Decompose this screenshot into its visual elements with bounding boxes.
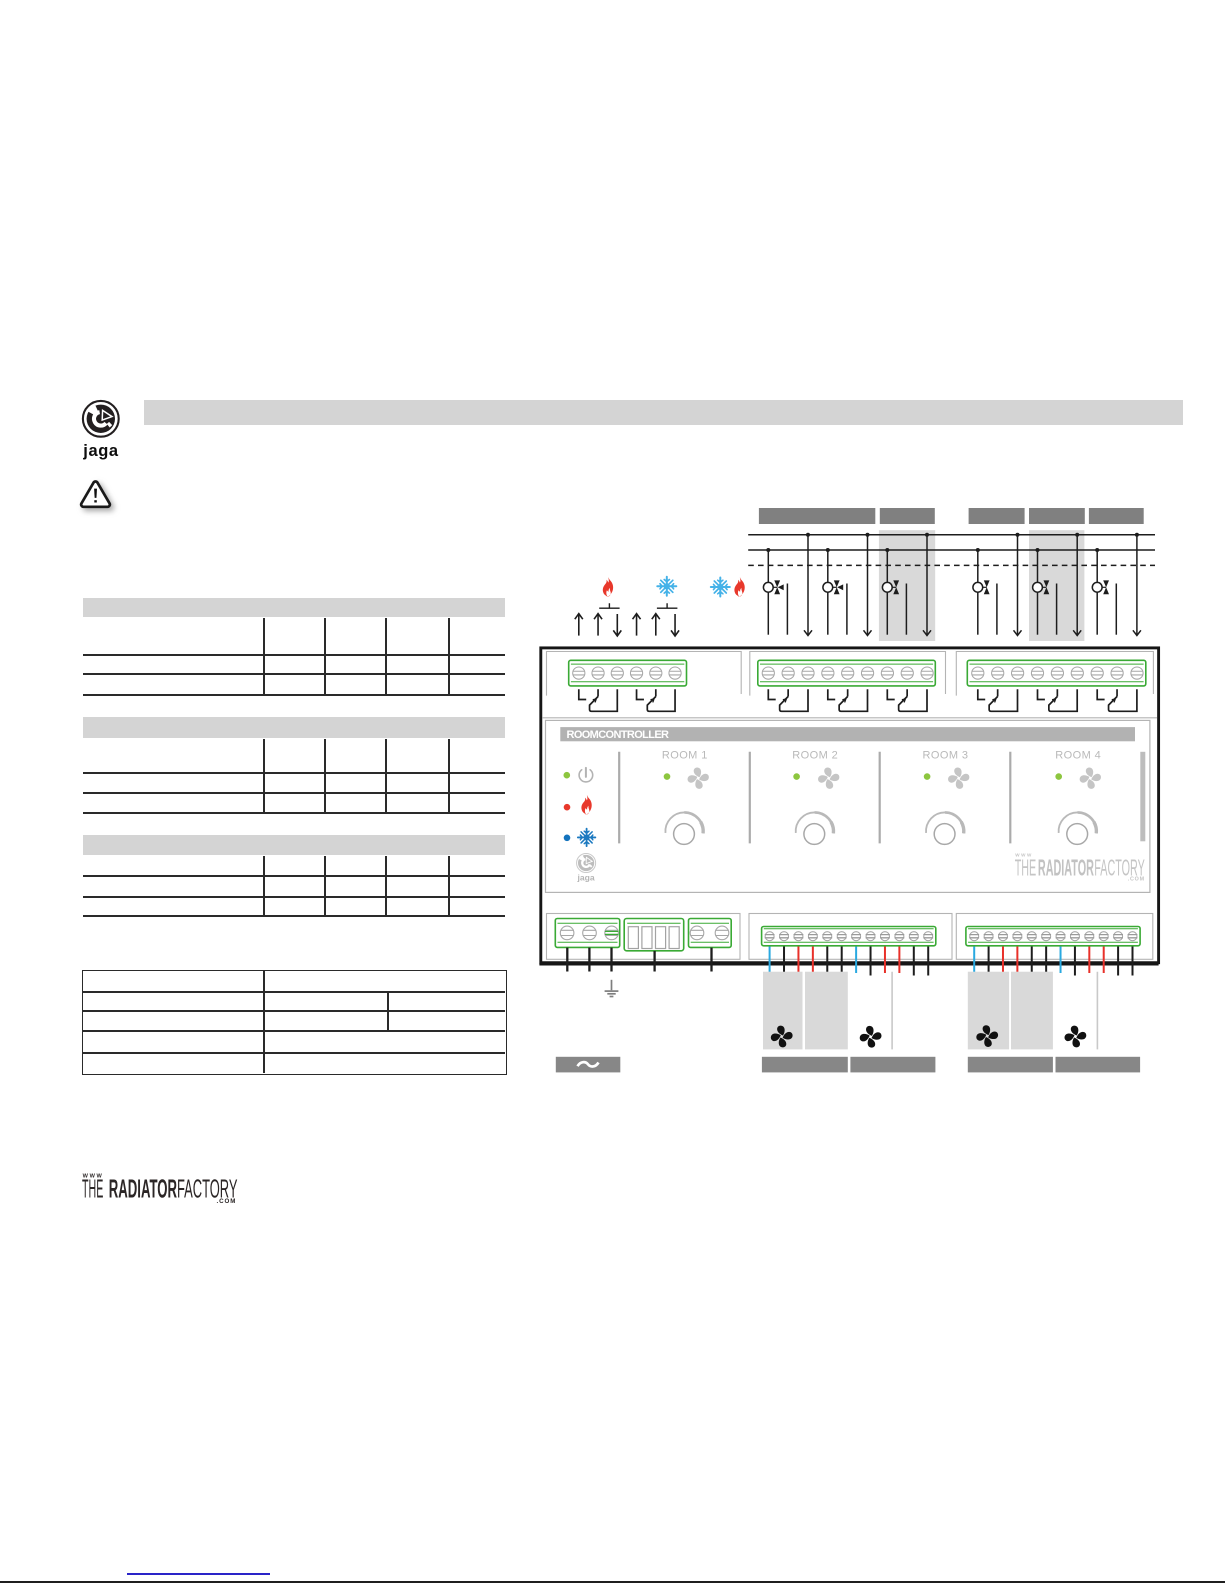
svg-text:RADIATOR: RADIATOR: [109, 1174, 177, 1204]
svg-text:ROOM 3: ROOM 3: [923, 749, 969, 761]
svg-text:.COM: .COM: [1128, 876, 1145, 882]
svg-text:ROOM 4: ROOM 4: [1055, 749, 1101, 761]
svg-text:ROOMCONTROLLER: ROOMCONTROLLER: [567, 729, 670, 741]
svg-text:.COM: .COM: [217, 1198, 237, 1205]
svg-text:THE: THE: [1015, 854, 1036, 880]
svg-text:ROOM 2: ROOM 2: [792, 749, 838, 761]
svg-text:THE: THE: [82, 1174, 103, 1204]
svg-text:ROOM 1: ROOM 1: [662, 749, 708, 761]
svg-text:jaga: jaga: [82, 442, 119, 460]
svg-text:RADIATOR: RADIATOR: [1038, 854, 1094, 880]
svg-text:jaga: jaga: [576, 873, 594, 883]
